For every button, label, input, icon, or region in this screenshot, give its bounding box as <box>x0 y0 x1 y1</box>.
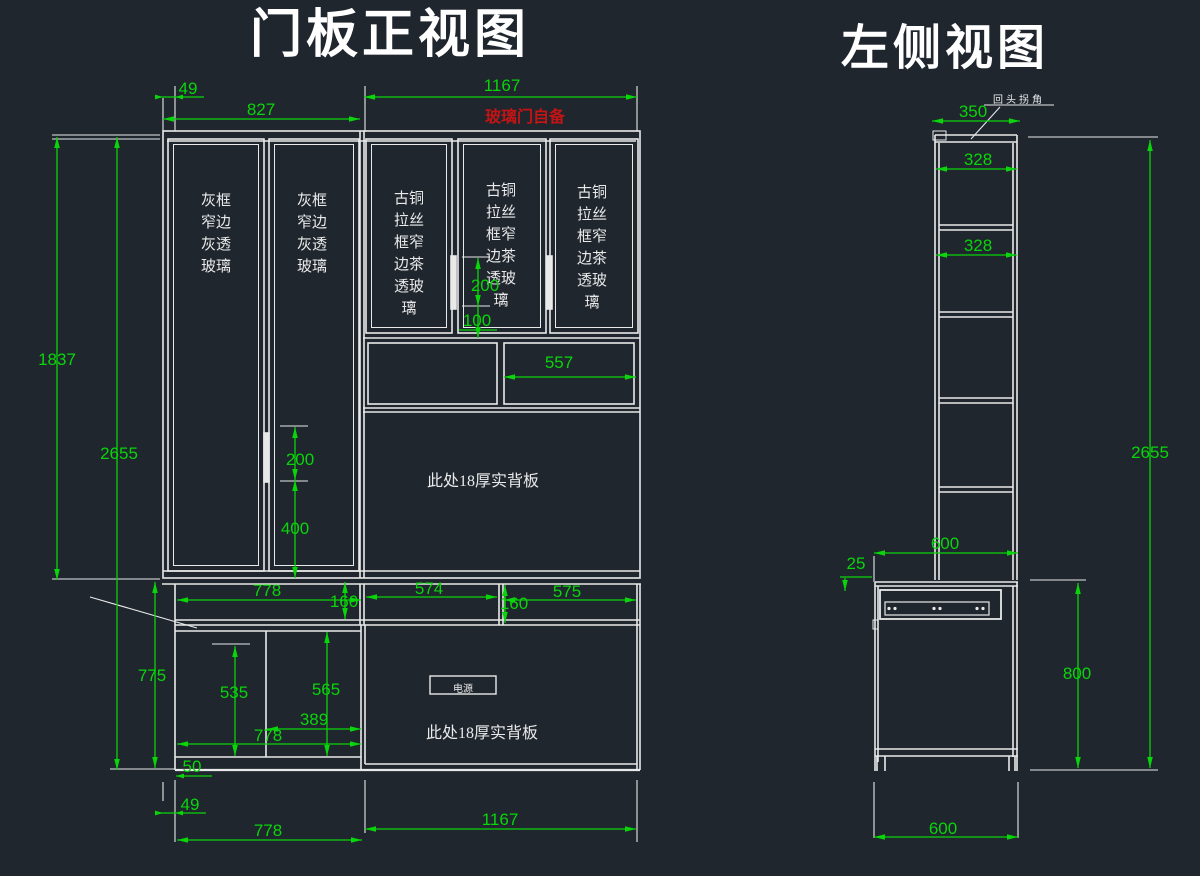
door-handle <box>451 256 456 309</box>
drawer-rail-screws <box>887 607 984 610</box>
dim-kick-height: 50 <box>178 757 206 776</box>
dim-counter-overhang: 25 <box>840 554 872 573</box>
dim-base-depth-top: 600 <box>922 534 968 553</box>
dim-drawer-right-width: 575 <box>546 582 588 601</box>
drawing-linework <box>0 0 1200 876</box>
dim-compartment-left-height: 535 <box>213 683 255 702</box>
dim-base-depth-bottom: 600 <box>920 819 966 838</box>
dim-bottom-left-width: 778 <box>247 821 289 840</box>
door-5-label: 古铜 拉丝 框窄 边茶 透玻 璃 <box>568 182 616 314</box>
dim-drawer-mid-width: 574 <box>408 579 450 598</box>
side-view-title: 左侧视图 <box>800 8 1090 78</box>
dim-shelf-depth-upper: 328 <box>956 150 1000 169</box>
side-extension-lines <box>874 105 1158 838</box>
dim-mid-handle-length: 200 <box>466 276 504 295</box>
cad-drawing-canvas: 门板正视图 左侧视图 玻璃门自备 灰框 窄边 灰透 玻璃 灰框 窄边 灰透 玻璃… <box>0 0 1200 876</box>
door-3-label: 古铜 拉丝 框窄 边茶 透玻 璃 <box>385 188 433 320</box>
lower-back-panel-note: 此处18厚实背板 <box>416 719 548 743</box>
drawer-slide-rail <box>885 602 989 615</box>
side-view-dimensions <box>840 121 1150 837</box>
dim-side-total-height: 2655 <box>1122 443 1178 462</box>
door-handle <box>547 256 552 309</box>
dim-drawer-height-left: 160 <box>325 592 363 611</box>
dim-top-right-width: 1167 <box>475 76 529 95</box>
dim-bottom-right-width: 1167 <box>473 810 527 829</box>
dim-top-left-width: 827 <box>240 100 282 119</box>
dim-left-handle-height: 400 <box>276 519 314 538</box>
dim-upper-height: 1837 <box>32 350 82 369</box>
glass-door-note: 玻璃门自备 <box>472 103 578 127</box>
door-1-label: 灰框 窄边 灰透 玻璃 <box>192 190 240 278</box>
door-handle <box>264 433 269 482</box>
dim-compartment-right-width: 389 <box>293 710 335 729</box>
dim-base-left-inner-width: 778 <box>247 726 289 745</box>
door-2-label: 灰框 窄边 灰透 玻璃 <box>288 190 336 278</box>
dim-side-base-height: 800 <box>1054 664 1100 683</box>
dim-total-height: 2655 <box>92 444 146 463</box>
dim-bottom-offset: 49 <box>174 795 206 814</box>
dim-compartment-right-height: 565 <box>305 680 347 699</box>
side-view-linework <box>873 105 1158 838</box>
dim-left-handle-length: 200 <box>281 450 319 469</box>
dim-shelf-depth-lower: 328 <box>956 236 1000 255</box>
dim-top-offset: 49 <box>172 79 204 98</box>
dim-drawer-height-right: 160 <box>495 594 533 613</box>
dim-mid-handle-offset: 100 <box>458 311 496 330</box>
dim-shelf-width: 557 <box>538 353 580 372</box>
upper-back-panel-note: 此处18厚实背板 <box>418 467 548 491</box>
front-view-title: 门板正视图 <box>200 0 580 67</box>
dim-base-height: 775 <box>131 666 173 685</box>
dim-drawer-left-width: 778 <box>246 581 288 600</box>
dim-side-top-depth: 350 <box>950 102 996 121</box>
power-outlet-label: 电源 <box>431 680 495 695</box>
